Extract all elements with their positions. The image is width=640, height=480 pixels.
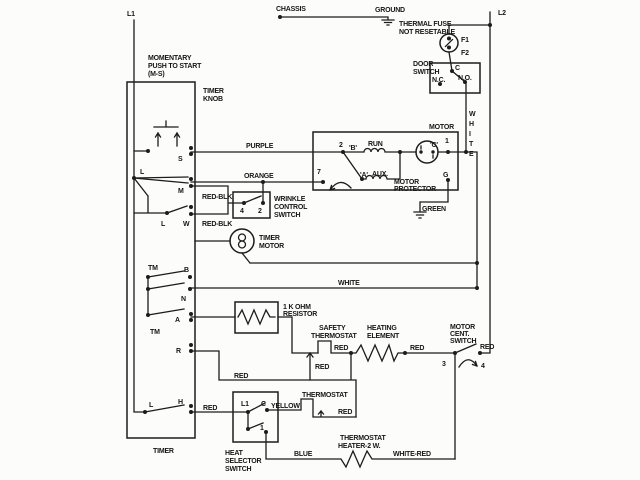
heat-selector-label-3: SWITCH [225,466,252,473]
timer-terminal-h-label: H [178,399,183,406]
motor-terminal-2-label: 2 [339,142,343,149]
timer-terminal-l-upper-label: L [140,169,145,176]
wrinkle-switch-box [233,192,270,218]
wrinkle-terminal-4-label: 4 [240,208,244,215]
schematic-canvas: L1 L2 CHASSIS GROUND THERMAL FUSE NOT RE… [0,0,640,480]
motor-cent-switch-label-3: SWITCH [450,338,477,345]
wrinkle-label-1: WRINKLE [274,196,306,203]
white-vertical-label-w: W [469,111,476,118]
timer-motor-label-2: MOTOR [259,243,284,250]
thermal-fuse-label-1: THERMAL FUSE [399,21,452,28]
timer-terminal-s-label: S [178,156,183,163]
white-vertical-label-i: I [469,131,471,138]
timer-terminal-a-label: A [175,317,180,324]
thermostat-heater-label-1: THERMOSTAT [340,435,386,442]
motor-box [313,132,458,190]
timer-terminal-w-label: W [183,221,190,228]
door-switch-label-2: SWITCH [413,69,440,76]
orange-wire-label: ORANGE [244,173,274,180]
heat-selector-label-2: SELECTOR [225,458,262,465]
momentary-label-1: MOMENTARY [148,55,192,62]
timer-knob-label-1: TIMER [203,88,224,95]
blue-wire-label: BLUE [294,451,313,458]
wrinkle-terminal-2-label: 2 [258,208,262,215]
timer-terminal-l-lower-label: L [149,402,154,409]
red-heating-label: RED [410,345,424,352]
motor-cent-switch-symbol [455,344,477,459]
l2-label: L2 [498,10,506,17]
motor-c-label: 'C' [430,142,438,149]
white-red-wire-label: WHITE-RED [393,451,431,458]
motor-aux-label: AUX. [372,171,388,178]
motor-run-label: RUN [368,141,383,148]
timer-motor-label-1: TIMER [259,235,280,242]
door-nc-label: N.C. [432,77,445,84]
white-vertical-label-e: E [469,151,474,158]
push-to-start-symbol [134,121,180,151]
heat-selector-c-label: C [261,401,266,408]
resistor-label-2: RESISTOR [283,311,317,318]
red-wire-r-label: RED [234,373,248,380]
thermal-fuse-label-2: NOT RESETABLE [399,29,456,36]
wrinkle-label-2: CONTROL [274,204,308,211]
timer-terminal-tm-lower-label: TM [150,329,160,336]
heating-element-label-1: HEATING [367,325,397,332]
momentary-label-2: PUSH TO START [148,63,202,70]
timer-terminal-b-label: B [184,267,189,274]
motor-name-label: MOTOR [429,124,454,131]
heat-selector-label-1: HEAT [225,450,244,457]
ground-label: GROUND [375,7,405,14]
chassis-ground-wire [280,17,394,25]
motor-cent-switch-label-1: MOTOR [450,324,475,331]
thermostat-label: THERMOSTAT [302,392,348,399]
white-wires [190,71,477,288]
safety-thermostat-label-2: THERMOSTAT [311,333,357,340]
red-safety-upper-label: RED [334,345,348,352]
timer-name-label: TIMER [153,448,174,455]
red-blk-label-2: RED-BLK [202,221,232,228]
white-vertical-label-t: T [469,141,474,148]
red-thermostat-label: RED [338,409,352,416]
thermal-fuse-symbol [440,34,458,52]
resistor-label-1: 1 K OHM [283,304,311,311]
timer-box [127,82,195,438]
door-no-label: N.O. [458,75,472,82]
red-blk-label-1: RED-BLK [202,194,232,201]
white-wire-label: WHITE [338,280,360,287]
motor-b-label: 'B' [349,145,357,152]
thermostat-heater-label-2: HEATER-2 W. [338,443,381,450]
timer-knob-label-2: KNOB [203,96,223,103]
motor-cent-switch-label-2: CENT. [450,331,469,338]
yellow-wire-label: YELLOW [271,403,300,410]
heat-selector-l1-label: L1 [241,401,249,408]
timer-terminal-r-label: R [176,348,181,355]
motor-terminal-1-label: 1 [445,138,449,145]
door-c-label: C [455,65,460,72]
motor-terminal-7-label: 7 [317,169,321,176]
cent-terminal-4-label: 4 [481,363,485,370]
white-vertical-label-h: H [469,121,474,128]
timer-terminal-tm-upper-label: TM [148,265,158,272]
chassis-label: CHASSIS [276,6,306,13]
timer-terminal-l-mid-label: L [161,221,166,228]
timer-terminal-m-label: M [178,188,184,195]
heating-element-label-2: ELEMENT [367,333,400,340]
l1-label: L1 [127,11,135,18]
wiring-diagram: L1 L2 CHASSIS GROUND THERMAL FUSE NOT RE… [0,0,640,480]
heat-selector-box [233,392,278,442]
l2-rail [480,12,490,353]
motor-ground-terminal-label: G [443,172,449,179]
timer-contacts [134,177,188,412]
red-h-wire-label: RED [203,405,217,412]
motor-protector-label-1: MOTOR [394,179,419,186]
door-switch-label-1: DOOR [413,61,433,68]
l1-rail [134,20,145,412]
cent-terminal-3-label: 3 [442,361,446,368]
timer-terminal-n-label: N [181,296,186,303]
motor-windings [330,146,448,190]
green-wire-label: GREEN [422,206,446,213]
red-cent-label: RED [480,344,494,351]
momentary-label-3: (M-S) [148,71,165,78]
motor-protector-label-2: PROTECTOR [394,186,436,193]
wrinkle-label-3: SWITCH [274,212,301,219]
safety-thermostat-label-1: SAFETY [319,325,346,332]
fuse-f2-label: F2 [461,50,469,57]
red-safety-lower-label: RED [315,364,329,371]
purple-wire-label: PURPLE [246,143,274,150]
timer-motor-symbol [230,229,254,253]
heat-selector-terminal-1-label: 1 [260,425,264,432]
motor-a-label: 'A' [360,172,368,179]
fuse-f1-label: F1 [461,37,469,44]
